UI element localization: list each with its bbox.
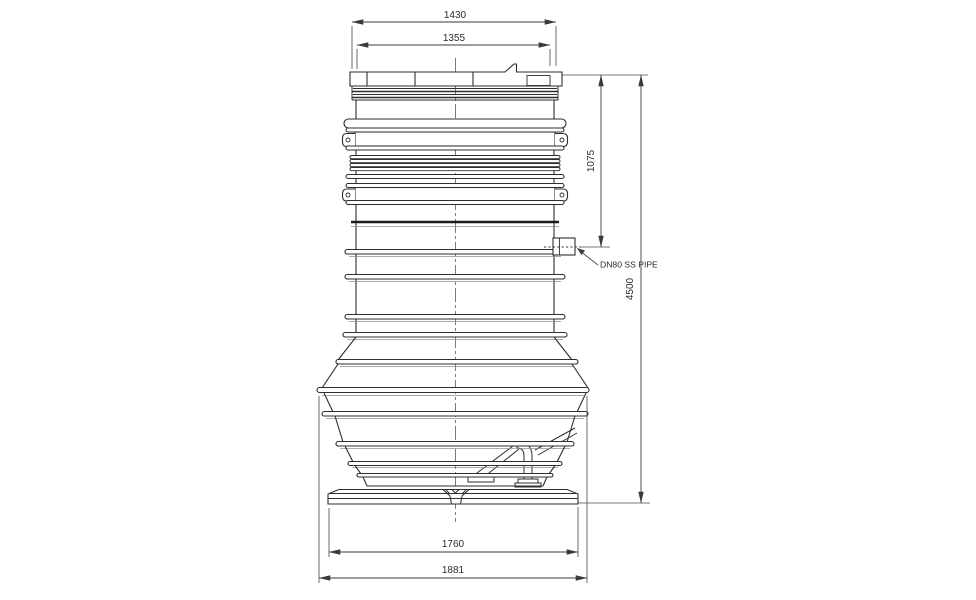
lid-seal-stack bbox=[352, 86, 558, 100]
base-plate-outline bbox=[328, 490, 578, 505]
body-rib bbox=[336, 360, 578, 365]
dimension-lid-outer: 1430 bbox=[352, 10, 556, 22]
body-rib bbox=[345, 250, 565, 255]
flare-cone bbox=[317, 337, 589, 396]
dim-value-1760: 1760 bbox=[442, 539, 465, 550]
corrugation-ring bbox=[350, 160, 560, 163]
pump-station-elevation-drawing: DN80 SS PIPE 1430 1355 1075 4500 1760 bbox=[0, 0, 976, 600]
dim-value-1355: 1355 bbox=[443, 33, 466, 44]
body-rib bbox=[348, 462, 562, 466]
tank-neck bbox=[356, 100, 554, 119]
sump-cone bbox=[322, 393, 588, 486]
band-rib bbox=[346, 184, 564, 188]
dim-value-1430: 1430 bbox=[444, 10, 467, 21]
dim-value-4500: 4500 bbox=[625, 277, 636, 300]
body-rib bbox=[357, 474, 553, 478]
corrugation-ring bbox=[350, 156, 560, 159]
corrugation-ring bbox=[350, 164, 560, 167]
body-rib bbox=[346, 175, 564, 179]
guide-rail bbox=[473, 443, 517, 476]
drawing-sheet: DN80 SS PIPE 1430 1355 1075 4500 1760 bbox=[0, 0, 976, 600]
band-rib bbox=[346, 201, 564, 205]
body-rib bbox=[345, 315, 565, 320]
body-rib bbox=[343, 333, 567, 338]
pipe-flange bbox=[518, 479, 538, 483]
clamp-band-upper bbox=[343, 128, 568, 150]
body-rib bbox=[345, 275, 565, 280]
dimension-overall-width: 1881 bbox=[319, 565, 587, 578]
band-rib bbox=[346, 128, 564, 132]
clamp-band-lower bbox=[343, 184, 568, 205]
corrugation-ring bbox=[350, 168, 560, 171]
base-plate bbox=[328, 490, 578, 505]
leader-line bbox=[582, 253, 598, 266]
corrugated-coupling bbox=[350, 156, 560, 171]
band-body bbox=[355, 188, 555, 202]
body-rib bbox=[322, 412, 588, 417]
dimension-base-plate: 1760 bbox=[329, 539, 578, 552]
ear-bolt-hole-left bbox=[346, 138, 350, 142]
discharge-riser bbox=[535, 428, 575, 450]
lid-hatch-panel bbox=[527, 76, 550, 86]
dim-value-1075: 1075 bbox=[586, 149, 597, 172]
ear-bolt-hole-left bbox=[346, 193, 350, 197]
dimension-overall-height: 4500 bbox=[625, 75, 641, 503]
ear-bolt-hole-right bbox=[560, 193, 564, 197]
dim-value-1881: 1881 bbox=[442, 565, 465, 576]
pipe-stub bbox=[553, 238, 575, 255]
widest-rib bbox=[317, 388, 589, 393]
ear-bolt-hole-right bbox=[560, 138, 564, 142]
band-rib bbox=[346, 146, 564, 150]
band-body bbox=[355, 132, 555, 146]
shaft-ribs bbox=[343, 222, 567, 340]
body-rib bbox=[336, 442, 574, 447]
neck-rolled-ring bbox=[344, 119, 566, 128]
tank-lid bbox=[350, 64, 562, 86]
pipe-callout-label: DN80 SS PIPE bbox=[600, 260, 658, 270]
dimension-lid-inner: 1355 bbox=[357, 33, 550, 45]
internal-discharge-piping bbox=[468, 428, 577, 487]
dimension-inlet-drop: 1075 bbox=[586, 75, 601, 247]
